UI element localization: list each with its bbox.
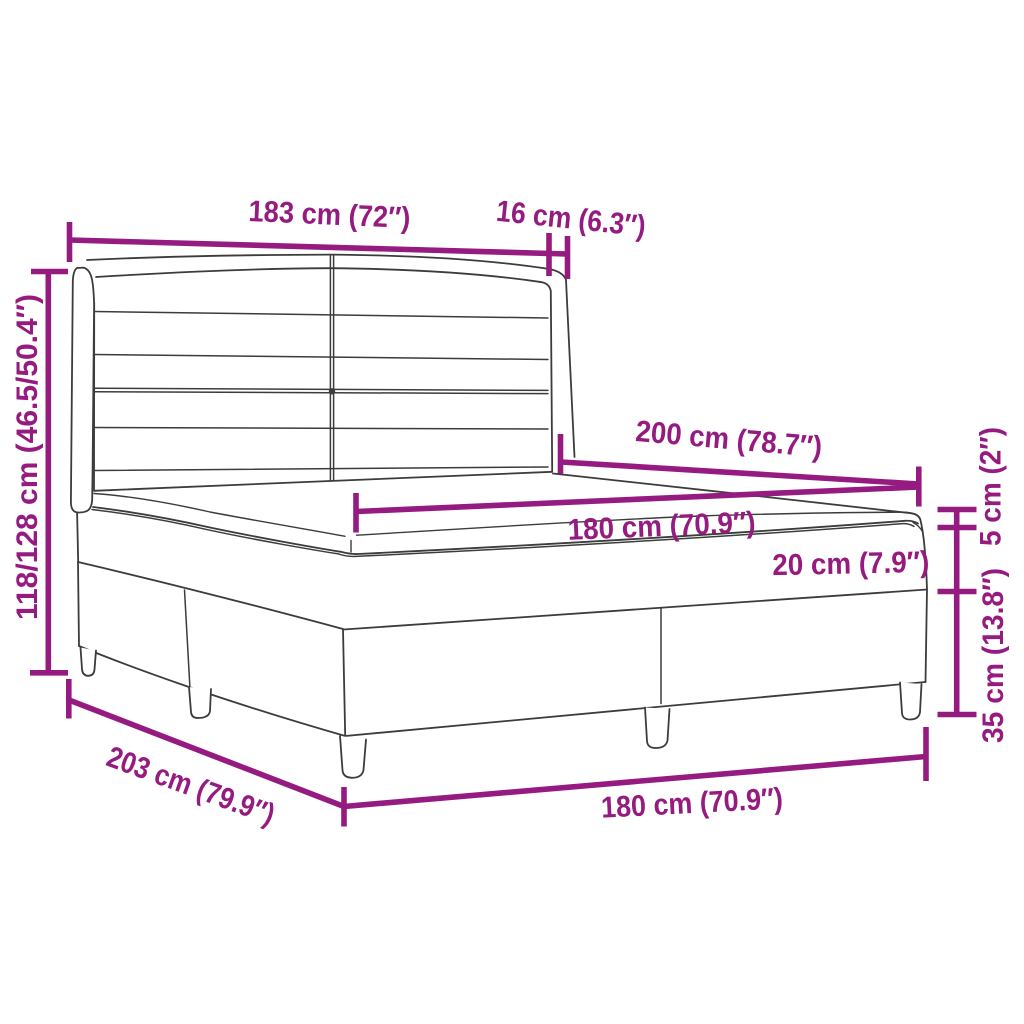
svg-text:20 cm (7.9″): 20 cm (7.9″) xyxy=(772,546,930,582)
svg-text:118/128 cm (46.5/50.4″): 118/128 cm (46.5/50.4″) xyxy=(11,294,44,620)
svg-text:5 cm (2″): 5 cm (2″) xyxy=(975,427,1008,546)
svg-text:35 cm (13.8″): 35 cm (13.8″) xyxy=(977,568,1010,743)
svg-text:183 cm (72″): 183 cm (72″) xyxy=(248,195,411,235)
